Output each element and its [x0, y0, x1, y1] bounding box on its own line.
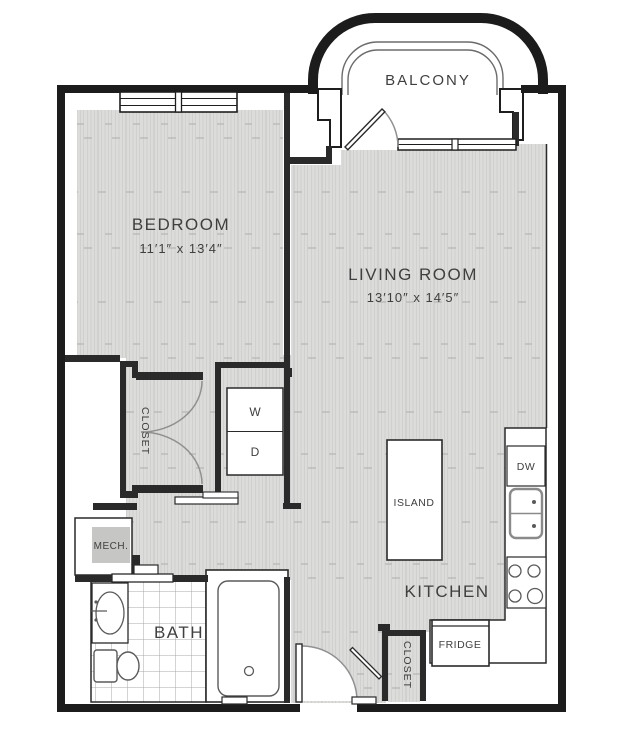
toilet-tank-icon — [94, 650, 117, 682]
entry-jamb-trim — [352, 697, 376, 704]
entry-closet-label: CLOSET — [401, 641, 413, 689]
faucet-handle-icon — [94, 600, 97, 603]
mech-label: MECH. — [94, 541, 129, 552]
bathtub-icon — [218, 581, 279, 696]
dishwasher-label: DW — [517, 461, 536, 473]
dryer-label: D — [251, 445, 260, 459]
island-label: ISLAND — [394, 497, 435, 509]
washer-label: W — [249, 405, 261, 419]
kitchen-label: KITCHEN — [404, 582, 489, 601]
sink-drain-icon — [532, 524, 536, 528]
bedroom-label: BEDROOM — [132, 215, 230, 234]
bedroom-dims: 11′1″ x 13′4″ — [139, 241, 222, 256]
fridge-label: FRIDGE — [439, 639, 482, 651]
bedroom-closet-label: CLOSET — [139, 407, 151, 455]
window-mullion — [452, 139, 458, 150]
entry-door-leaf — [296, 644, 302, 702]
laundry-door-panel — [203, 492, 238, 498]
sink-drain-icon — [532, 500, 536, 504]
balcony-pier-right — [500, 89, 523, 140]
window-mullion — [176, 92, 182, 112]
living-room-dims: 13′10″ x 14′5″ — [367, 290, 459, 305]
bath-sink-icon — [96, 592, 124, 634]
bath-label: BATH — [154, 623, 204, 642]
toilet-bowl-icon — [117, 652, 139, 680]
floor-plan-drawing: BALCONY BEDROOM 11′1″ x 13′4″ LIVING ROO… — [0, 0, 623, 747]
bedroom-floor — [77, 110, 283, 358]
laundry-closet — [227, 388, 283, 475]
entry-jamb-trim — [222, 697, 247, 704]
balcony-pier-left — [318, 89, 341, 147]
bathtub-drain-icon — [245, 667, 254, 676]
bath-pocket-door — [112, 574, 173, 582]
living-room-label: LIVING ROOM — [348, 265, 478, 284]
bath-door-pocket — [134, 565, 158, 574]
balcony-label: BALCONY — [385, 72, 471, 89]
faucet-handle-icon — [94, 618, 97, 621]
floor-plan: BALCONY BEDROOM 11′1″ x 13′4″ LIVING ROO… — [0, 0, 623, 747]
stove-box — [507, 557, 546, 608]
